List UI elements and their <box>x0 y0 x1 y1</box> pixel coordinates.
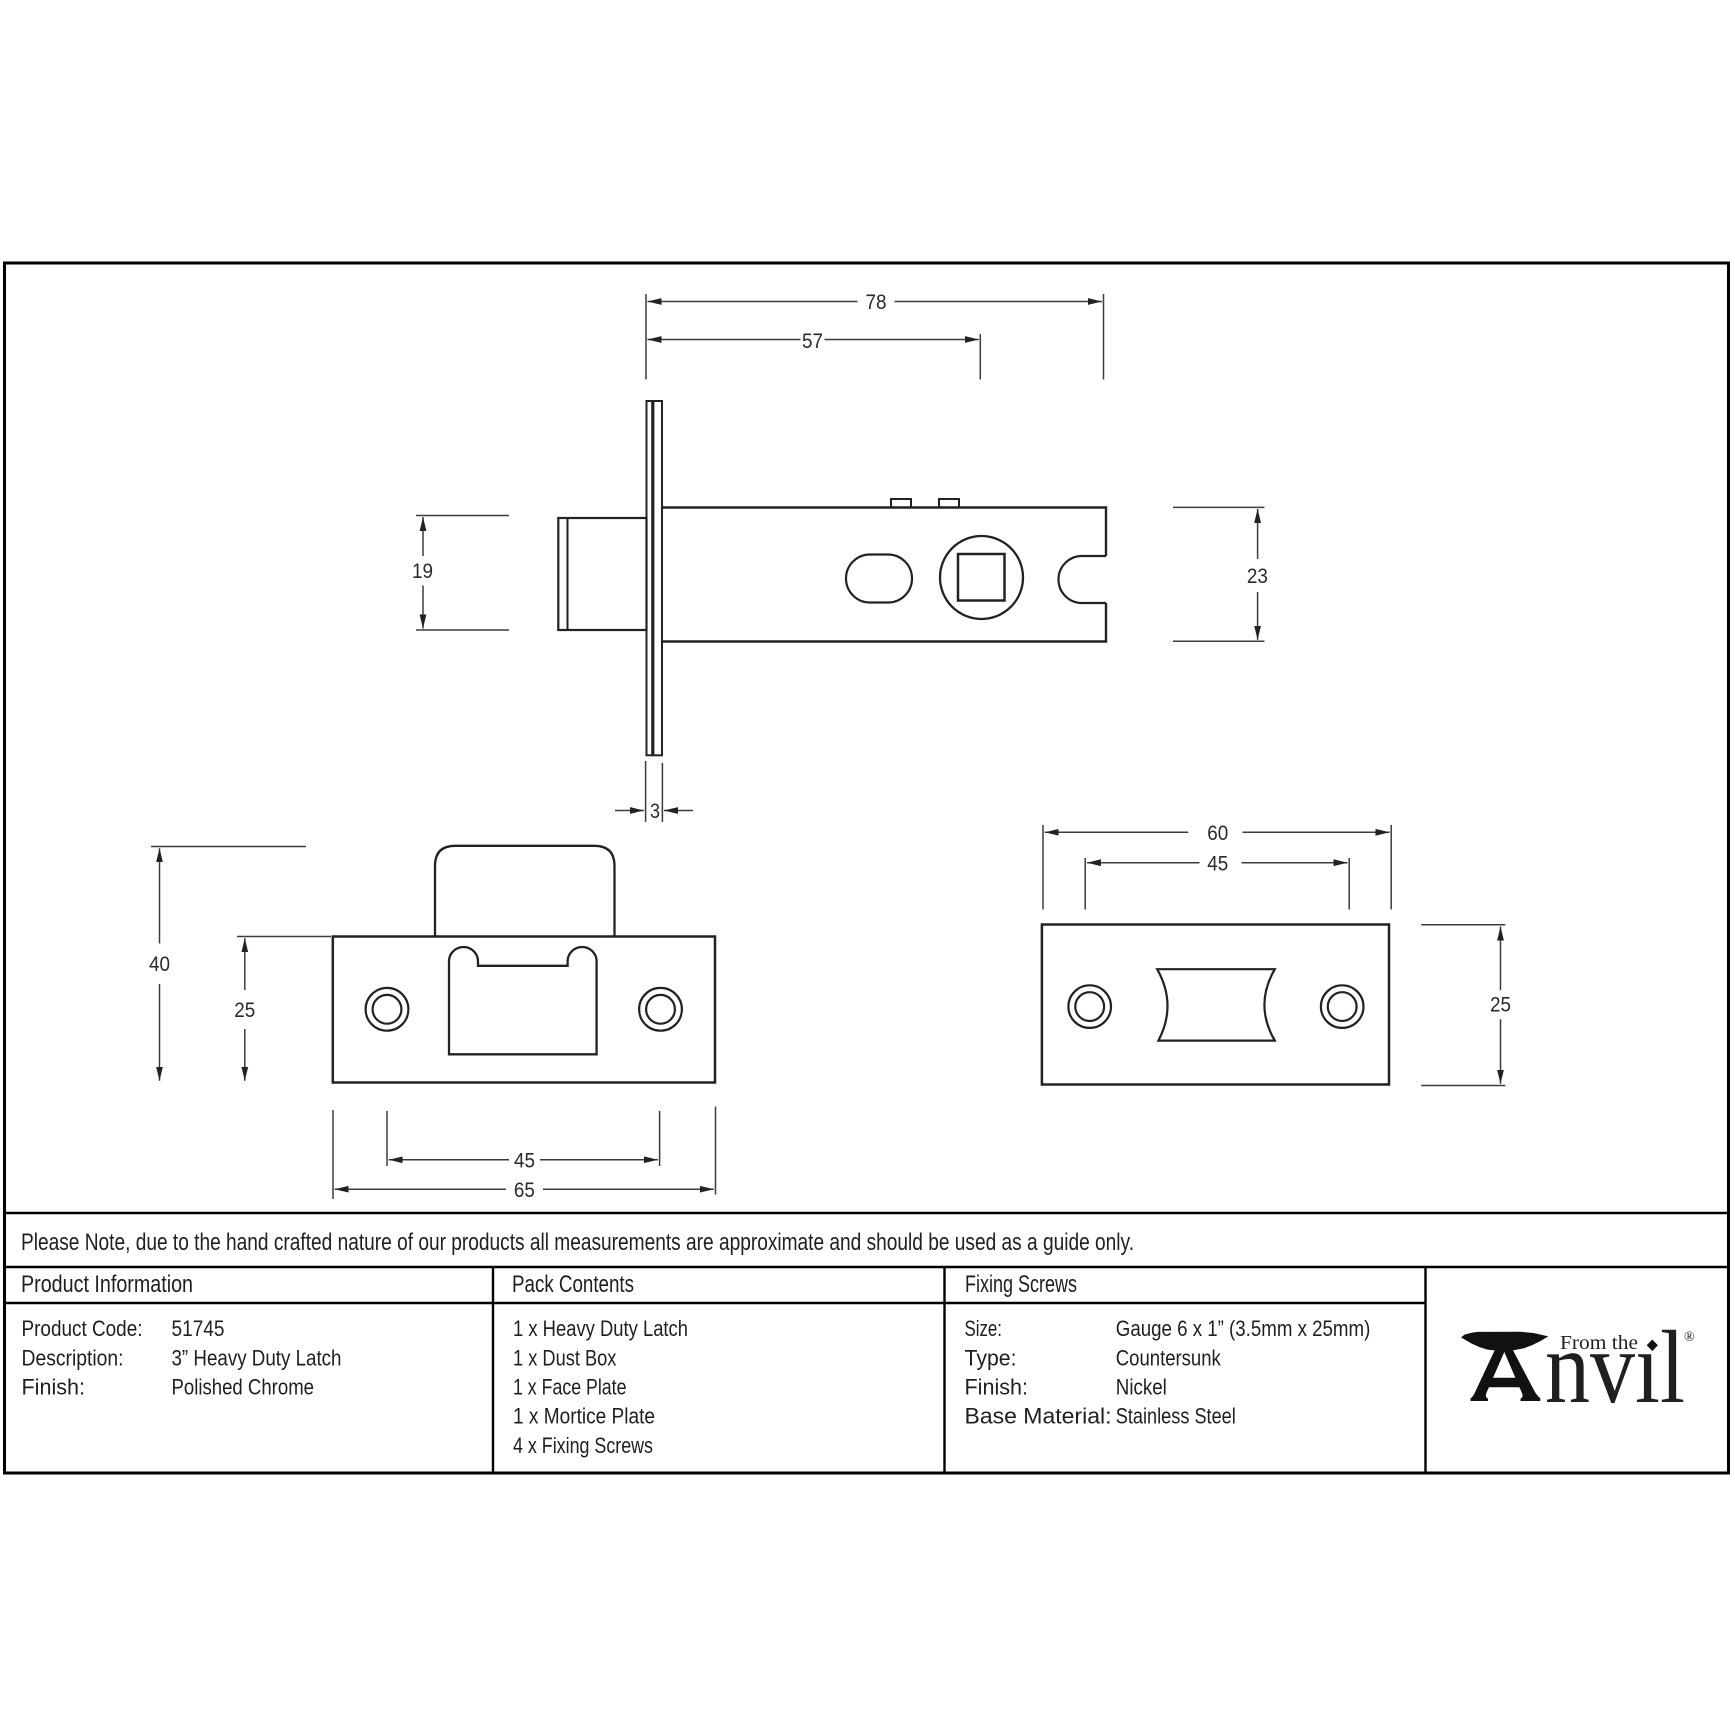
svg-text:40: 40 <box>149 953 170 976</box>
svg-text:1 x Dust Box: 1 x Dust Box <box>513 1345 616 1370</box>
svg-text:From the: From the <box>1560 1332 1638 1354</box>
svg-text:Finish:: Finish: <box>22 1375 86 1400</box>
svg-text:25: 25 <box>1490 994 1511 1017</box>
svg-text:19: 19 <box>412 560 433 583</box>
svg-text:Pack Contents: Pack Contents <box>512 1271 634 1298</box>
svg-text:Description:: Description: <box>22 1345 124 1370</box>
svg-text:60: 60 <box>1207 822 1228 845</box>
svg-text:Type:: Type: <box>965 1345 1017 1370</box>
svg-text:Product Information: Product Information <box>21 1271 193 1298</box>
svg-text:78: 78 <box>866 291 887 314</box>
svg-text:51745: 51745 <box>172 1316 225 1341</box>
svg-text:57: 57 <box>802 330 823 353</box>
svg-text:1 x Mortice Plate: 1 x Mortice Plate <box>513 1404 655 1429</box>
svg-text:Base Material:: Base Material: <box>965 1404 1112 1429</box>
svg-text:23: 23 <box>1247 565 1268 588</box>
svg-text:nvıl: nvıl <box>1545 1310 1685 1425</box>
svg-text:Fixing Screws: Fixing Screws <box>965 1271 1077 1298</box>
svg-text:Stainless Steel: Stainless Steel <box>1116 1404 1236 1429</box>
svg-text:Nickel: Nickel <box>1116 1375 1167 1400</box>
svg-text:45: 45 <box>514 1149 535 1172</box>
svg-text:1 x Heavy Duty Latch: 1 x Heavy Duty Latch <box>513 1316 688 1341</box>
svg-text:25: 25 <box>234 999 255 1022</box>
svg-text:Product Code:: Product Code: <box>22 1316 143 1341</box>
svg-text:65: 65 <box>514 1179 535 1202</box>
svg-text:Gauge 6 x 1” (3.5mm x 25mm): Gauge 6 x 1” (3.5mm x 25mm) <box>1116 1316 1371 1341</box>
svg-text:3: 3 <box>650 800 660 823</box>
svg-text:®: ® <box>1684 1330 1695 1345</box>
svg-text:1 x Face Plate: 1 x Face Plate <box>513 1375 627 1400</box>
svg-text:Countersunk: Countersunk <box>1116 1345 1222 1370</box>
svg-text:3” Heavy Duty Latch: 3” Heavy Duty Latch <box>172 1345 342 1370</box>
svg-text:4 x Fixing Screws: 4 x Fixing Screws <box>513 1433 653 1458</box>
svg-text:45: 45 <box>1207 852 1228 875</box>
svg-text:Polished Chrome: Polished Chrome <box>172 1375 315 1400</box>
svg-text:Please Note, due to the hand c: Please Note, due to the hand crafted nat… <box>21 1229 1134 1256</box>
svg-text:Finish:: Finish: <box>965 1375 1029 1400</box>
svg-text:Size:: Size: <box>965 1316 1003 1341</box>
